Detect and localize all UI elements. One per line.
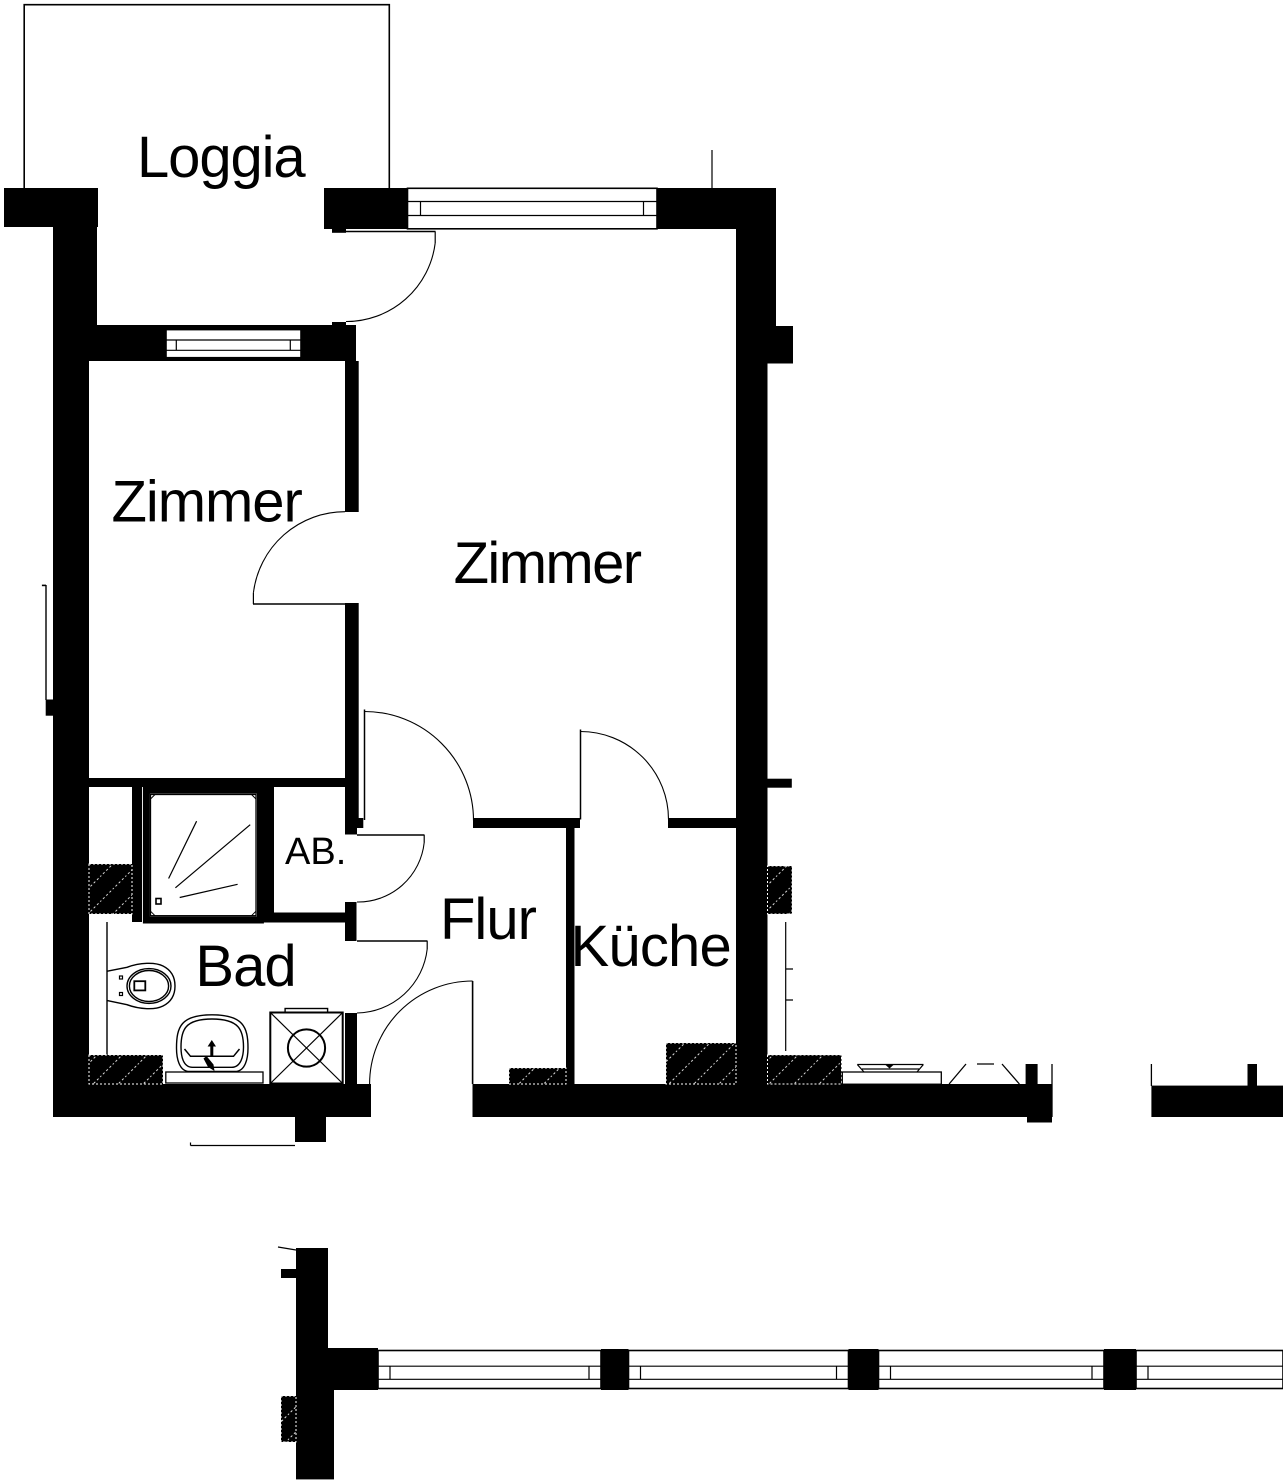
- svg-text:AB.: AB.: [285, 831, 346, 873]
- svg-text:Zimmer: Zimmer: [112, 469, 303, 534]
- svg-text:Flur: Flur: [440, 887, 537, 952]
- svg-text:Bad: Bad: [195, 934, 295, 999]
- svg-text:Zimmer: Zimmer: [454, 531, 642, 596]
- svg-text:Loggia: Loggia: [137, 125, 306, 190]
- svg-text:Küche: Küche: [571, 914, 731, 979]
